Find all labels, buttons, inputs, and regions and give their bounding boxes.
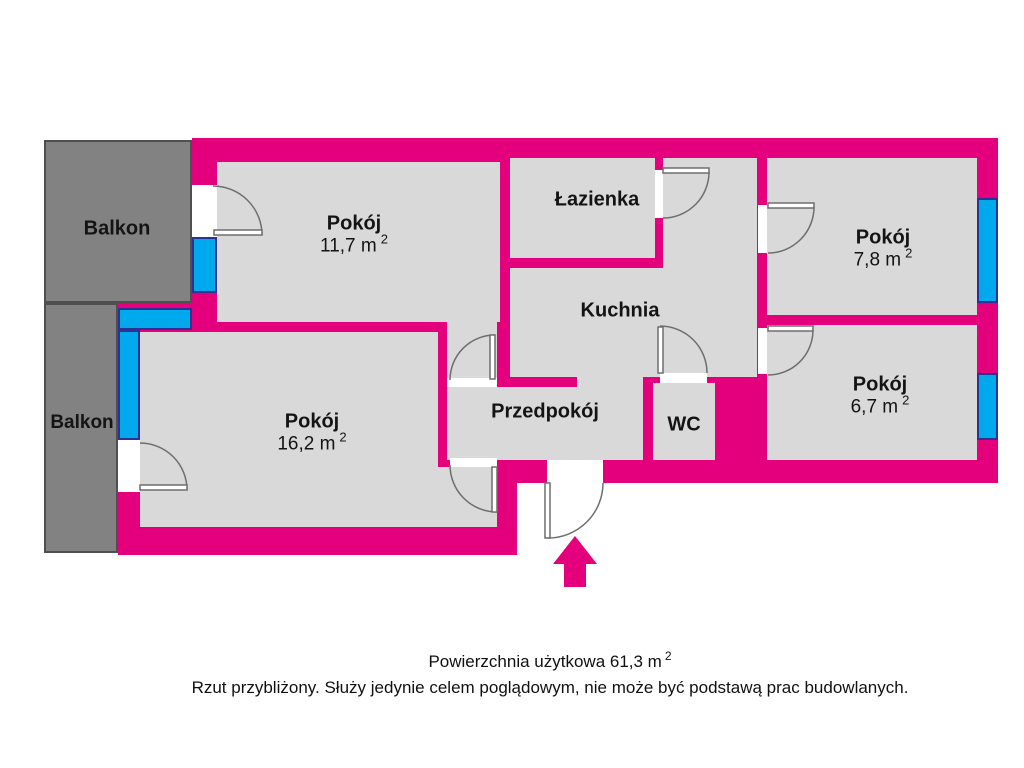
door-arc — [768, 330, 813, 375]
room-name: Łazienka — [555, 189, 639, 212]
door-leaf — [490, 335, 495, 379]
room-name: Balkon — [84, 218, 151, 241]
door-leaf — [768, 203, 814, 208]
room-label-pokoj-78: Pokój 7,8 m2 — [854, 227, 913, 272]
room-label-balkon-bottom: Balkon — [50, 412, 113, 434]
door-leaf — [214, 230, 262, 235]
room-name: Pokój — [853, 374, 907, 397]
room-label-pokoj-117: Pokój 11,7 m2 — [320, 213, 388, 258]
room-area: 11,7 m2 — [320, 236, 388, 258]
door-arc — [213, 186, 262, 235]
entrance-arrow-icon — [553, 536, 597, 587]
room-name: Pokój — [285, 411, 339, 434]
room-label-pokoj-162: Pokój 16,2 m2 — [277, 411, 346, 456]
door-leaf — [768, 326, 813, 331]
door-arc — [450, 465, 497, 512]
room-name: WC — [667, 414, 700, 437]
room-label-pokoj-67: Pokój 6,7 m2 — [851, 374, 910, 419]
room-name: Kuchnia — [581, 300, 660, 323]
door-arc — [450, 335, 495, 380]
door-arc — [548, 483, 603, 538]
room-label-lazienka: Łazienka — [555, 189, 639, 212]
room-name: Pokój — [856, 227, 910, 250]
room-area: 6,7 m2 — [851, 397, 910, 419]
room-name: Pokój — [327, 213, 381, 236]
door-arc — [660, 326, 707, 373]
door-leaf — [545, 483, 550, 538]
room-area: 7,8 m2 — [854, 250, 913, 272]
door-leaf — [658, 327, 663, 373]
caption-disclaimer: Rzut przybliżony. Służy jedynie celem po… — [38, 678, 1024, 698]
door-leaf — [140, 485, 187, 490]
room-label-przedpokoj: Przedpokój — [491, 401, 599, 424]
door-leaf — [492, 467, 497, 512]
floor-plan-canvas: Balkon Balkon Pokój 11,7 m2 Łazienka Kuc… — [0, 0, 1024, 768]
caption-usable-area: Powierzchnia użytkowa 61,3 m2 — [38, 652, 1024, 672]
room-area: 16,2 m2 — [277, 434, 346, 456]
door-arc — [663, 172, 709, 218]
door-arc — [140, 443, 187, 490]
room-label-kuchnia: Kuchnia — [581, 300, 660, 323]
door-arc — [768, 207, 814, 253]
room-name: Balkon — [50, 412, 113, 434]
room-label-balkon-top: Balkon — [84, 218, 151, 241]
door-leaf — [663, 168, 709, 173]
room-name: Przedpokój — [491, 401, 599, 424]
room-label-wc: WC — [667, 414, 700, 437]
